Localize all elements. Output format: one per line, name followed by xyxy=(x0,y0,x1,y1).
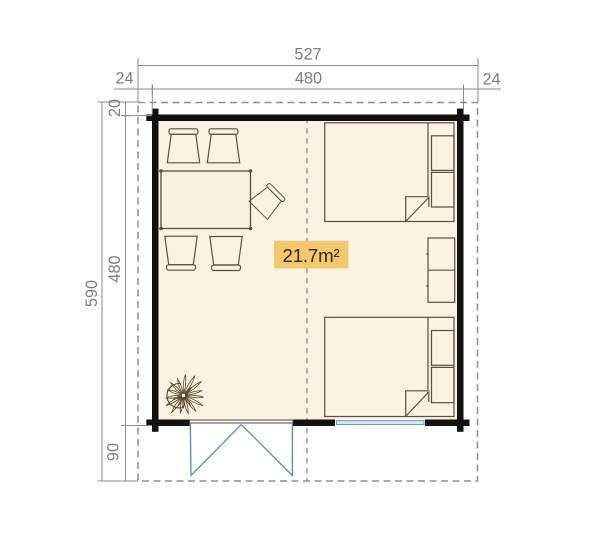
svg-text:590: 590 xyxy=(83,280,101,307)
svg-text:480: 480 xyxy=(295,70,322,88)
svg-text:90: 90 xyxy=(105,443,123,461)
svg-text:480: 480 xyxy=(106,255,124,282)
svg-text:24: 24 xyxy=(115,70,133,88)
svg-text:21.7m²: 21.7m² xyxy=(283,245,340,266)
svg-text:24: 24 xyxy=(482,71,500,89)
svg-text:527: 527 xyxy=(294,46,321,64)
svg-text:20: 20 xyxy=(106,99,124,117)
